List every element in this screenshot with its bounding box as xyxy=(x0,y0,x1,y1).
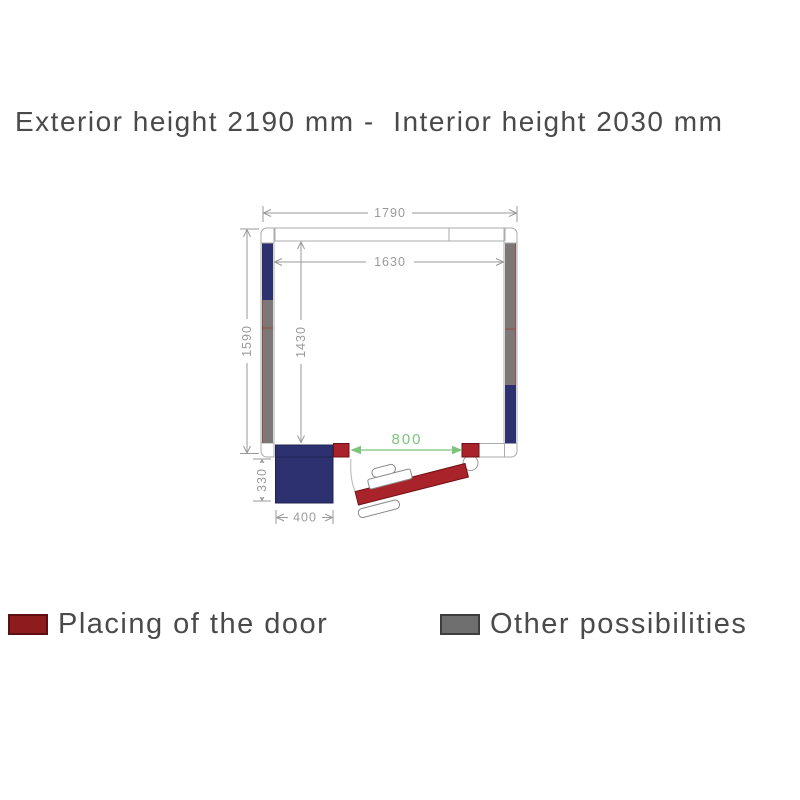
page: Exterior height 2190 mm - Interior heigh… xyxy=(0,0,800,800)
green-arrow-right xyxy=(452,446,463,454)
dimension-block-depth: 330 xyxy=(253,459,271,501)
wall-segment-blue-left xyxy=(262,244,273,301)
wall-segment-gray-right xyxy=(505,244,516,386)
dimension-inner-depth: 1430 xyxy=(293,242,309,444)
legend-label-other: Other possibilities xyxy=(490,608,747,641)
dimension-label-door-width: 800 xyxy=(391,431,422,448)
door-color-swatch xyxy=(8,614,49,636)
wall-segment-blue-right xyxy=(505,385,516,444)
legend-label-door: Placing of the door xyxy=(58,608,328,641)
dimension-outer-depth: 1590 xyxy=(239,229,259,454)
dimension-block-width: 400 xyxy=(276,510,333,525)
dimension-inner-width: 1630 xyxy=(274,254,504,270)
legend-item-other: Other possibilities xyxy=(440,608,747,641)
dimension-outer-width: 1790 xyxy=(263,205,517,222)
cooling-unit-block xyxy=(276,445,334,503)
wall-segment-gray-left xyxy=(262,300,273,443)
dimension-label-outer-width: 1790 xyxy=(374,206,406,220)
dimension-label-block-width: 400 xyxy=(293,511,317,525)
floor-plan-diagram: 1790 1630 1590 xyxy=(0,0,800,800)
dimension-label-inner-depth: 1430 xyxy=(294,326,308,358)
legend-item-door: Placing of the door xyxy=(8,608,328,641)
other-color-swatch xyxy=(440,614,481,636)
bottom-right-wall xyxy=(479,444,505,458)
green-arrow-left xyxy=(351,446,362,454)
dimension-label-block-depth: 330 xyxy=(255,468,269,492)
dimension-door-width: 800 xyxy=(351,431,463,454)
door-jamb-right xyxy=(462,444,479,458)
door-jamb-left xyxy=(334,444,350,458)
top-wall xyxy=(261,228,517,241)
dimension-label-inner-width: 1630 xyxy=(374,255,406,269)
dimension-label-outer-depth: 1590 xyxy=(240,325,254,357)
